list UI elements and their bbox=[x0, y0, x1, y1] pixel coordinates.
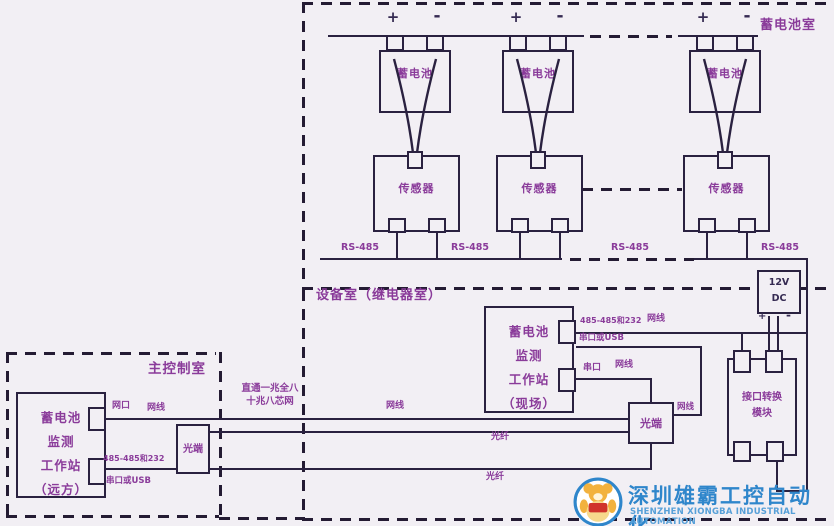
wire-to-fiber-converter-right bbox=[674, 414, 702, 416]
sensor-bus-drop-left bbox=[519, 233, 521, 259]
sensor-port-right bbox=[551, 218, 569, 233]
dc-power-line1: 12V bbox=[759, 278, 799, 288]
minus-terminal-label: - bbox=[551, 7, 569, 26]
cable-note-line2: 十兆八芯网 bbox=[227, 397, 313, 407]
wire-label-net-1: 网线 bbox=[647, 315, 665, 325]
wire-label-net-3: 网线 bbox=[677, 403, 694, 412]
battery-funnel-shape bbox=[701, 57, 749, 157]
sensor-top-terminal bbox=[530, 151, 546, 169]
module-port-bottom-right bbox=[766, 441, 784, 462]
fiber-run-2 bbox=[210, 468, 652, 470]
fiber-converter-down-link bbox=[650, 444, 652, 468]
sensor-bus-drop-right bbox=[746, 233, 748, 259]
battery-room-border-left bbox=[302, 2, 305, 287]
onsite-workstation-port-bottom bbox=[558, 368, 576, 392]
wire-serial-drop bbox=[650, 378, 652, 402]
wire-serial-usb bbox=[576, 346, 702, 348]
battery-plus-terminal bbox=[696, 35, 714, 51]
plus-terminal-label: + bbox=[384, 9, 402, 26]
wire-label-485-232: 485-485和232 bbox=[580, 317, 641, 326]
wiring-diagram: + - 蓄电池 传感器 + - 蓄电池 传感器 bbox=[0, 0, 834, 526]
fiber-converter-left-box: 光端 bbox=[176, 424, 210, 474]
sensor-label: 传感器 bbox=[498, 183, 581, 195]
battery-minus-terminal bbox=[549, 35, 567, 51]
battery-group-1: + - 蓄电池 传感器 bbox=[370, 0, 462, 262]
control-room-border-right bbox=[219, 352, 222, 518]
minus-terminal-label: - bbox=[428, 7, 446, 26]
module-port-bottom-left bbox=[733, 441, 751, 462]
plus-terminal-label: + bbox=[694, 9, 712, 26]
fiber-converter-right-box: 光端 bbox=[628, 402, 674, 444]
wire-serial-usb-drop bbox=[700, 346, 702, 416]
wire-label-485-232-remote: 485-485和232 bbox=[103, 455, 164, 464]
sensor-bus-drop-left bbox=[396, 233, 398, 259]
corridor-border-bottom bbox=[219, 517, 305, 520]
remote-workstation-line2: 监测 bbox=[18, 431, 104, 450]
sensor-label: 传感器 bbox=[685, 183, 768, 195]
wire-label-serial-usb-remote: 串口或USB bbox=[106, 477, 151, 486]
rs485-bus-dashed bbox=[570, 258, 694, 261]
wire-serial bbox=[576, 378, 652, 380]
module-port-top-left bbox=[733, 350, 751, 373]
dc-plus-mark: + bbox=[758, 311, 766, 322]
control-room-border-top bbox=[6, 352, 216, 355]
wire-label-net-2: 网线 bbox=[615, 361, 633, 371]
battery-minus-terminal bbox=[736, 35, 754, 51]
wire-label-net-5: 网线 bbox=[386, 402, 404, 412]
onsite-workstation-line2: 监测 bbox=[486, 345, 572, 364]
sensor-port-left bbox=[388, 218, 406, 233]
interface-module-line2: 模块 bbox=[729, 408, 795, 419]
dc-bus-dashed-continuation bbox=[590, 35, 672, 38]
workstation-to-converter-link bbox=[106, 468, 176, 470]
onsite-workstation-port-top bbox=[558, 320, 576, 344]
fiber-label-1: 光纤 bbox=[491, 433, 509, 443]
xiongba-logo-badge bbox=[573, 477, 623, 526]
power-wire-2 bbox=[777, 316, 779, 354]
onsite-workstation-line4: （现场） bbox=[486, 393, 572, 412]
battery-funnel-shape bbox=[391, 57, 439, 157]
battery-room-label: 蓄电池室 bbox=[760, 19, 816, 33]
rs485-label-4: RS-485 bbox=[753, 243, 807, 253]
fiber-converter-left-label: 光端 bbox=[178, 444, 208, 455]
sensor-bus-drop-left bbox=[706, 233, 708, 259]
module-port-top-right bbox=[765, 350, 783, 373]
wire-label-serial-usb: 串口或USB bbox=[579, 334, 624, 343]
interface-module-line1: 接口转换 bbox=[729, 392, 795, 403]
sensor-bus-drop-right bbox=[559, 233, 561, 259]
rs485-label-3: RS-485 bbox=[603, 243, 657, 253]
sensor-top-terminal bbox=[407, 151, 423, 169]
rs485-riser-right bbox=[806, 258, 808, 490]
wire-label-serial: 串口 bbox=[583, 364, 601, 374]
cable-note-line1: 直通一兆全八 bbox=[227, 384, 313, 394]
dc-power-line2: DC bbox=[759, 294, 799, 304]
rs485-label-1: RS-485 bbox=[333, 243, 387, 253]
sensor-label: 传感器 bbox=[375, 183, 458, 195]
dc-minus-mark: - bbox=[786, 309, 791, 322]
sensor-port-right bbox=[428, 218, 446, 233]
control-room-label: 主控制室 bbox=[148, 362, 206, 377]
minus-terminal-label: - bbox=[738, 7, 756, 26]
fiber-run-1 bbox=[210, 431, 628, 433]
control-room-border-left bbox=[6, 352, 9, 518]
sensor-top-terminal bbox=[717, 151, 733, 169]
battery-plus-terminal bbox=[386, 35, 404, 51]
battery-group-3: + - 蓄电池 传感器 bbox=[680, 0, 772, 262]
equipment-room-label: 设备室（继电器室） bbox=[316, 289, 442, 303]
rs485-label-2: RS-485 bbox=[443, 243, 497, 253]
sensor-dashed-continuation bbox=[582, 188, 682, 191]
sensor-bus-drop-right bbox=[436, 233, 438, 259]
dc-power-box: 12V DC bbox=[757, 270, 801, 314]
control-room-border-bottom bbox=[6, 515, 219, 518]
fiber-converter-right-label: 光端 bbox=[630, 418, 672, 430]
sensor-port-left bbox=[511, 218, 529, 233]
battery-group-2: + - 蓄电池 传感器 bbox=[493, 0, 585, 262]
plus-terminal-label: + bbox=[507, 9, 525, 26]
wire-label-net-port: 网口 bbox=[112, 402, 130, 412]
fiber-label-2: 光纤 bbox=[486, 473, 504, 483]
wire-label-net-4: 网线 bbox=[147, 404, 165, 414]
watermark-company-en: SHENZHEN XIONGBA INDUSTRIAL AUTOMATION bbox=[630, 507, 834, 526]
battery-minus-terminal bbox=[426, 35, 444, 51]
sensor-port-right bbox=[738, 218, 756, 233]
remote-workstation-port-top bbox=[88, 407, 106, 431]
battery-plus-terminal bbox=[509, 35, 527, 51]
power-wire-1 bbox=[768, 316, 770, 354]
sensor-port-left bbox=[698, 218, 716, 233]
network-run bbox=[106, 418, 628, 420]
battery-funnel-shape bbox=[514, 57, 562, 157]
